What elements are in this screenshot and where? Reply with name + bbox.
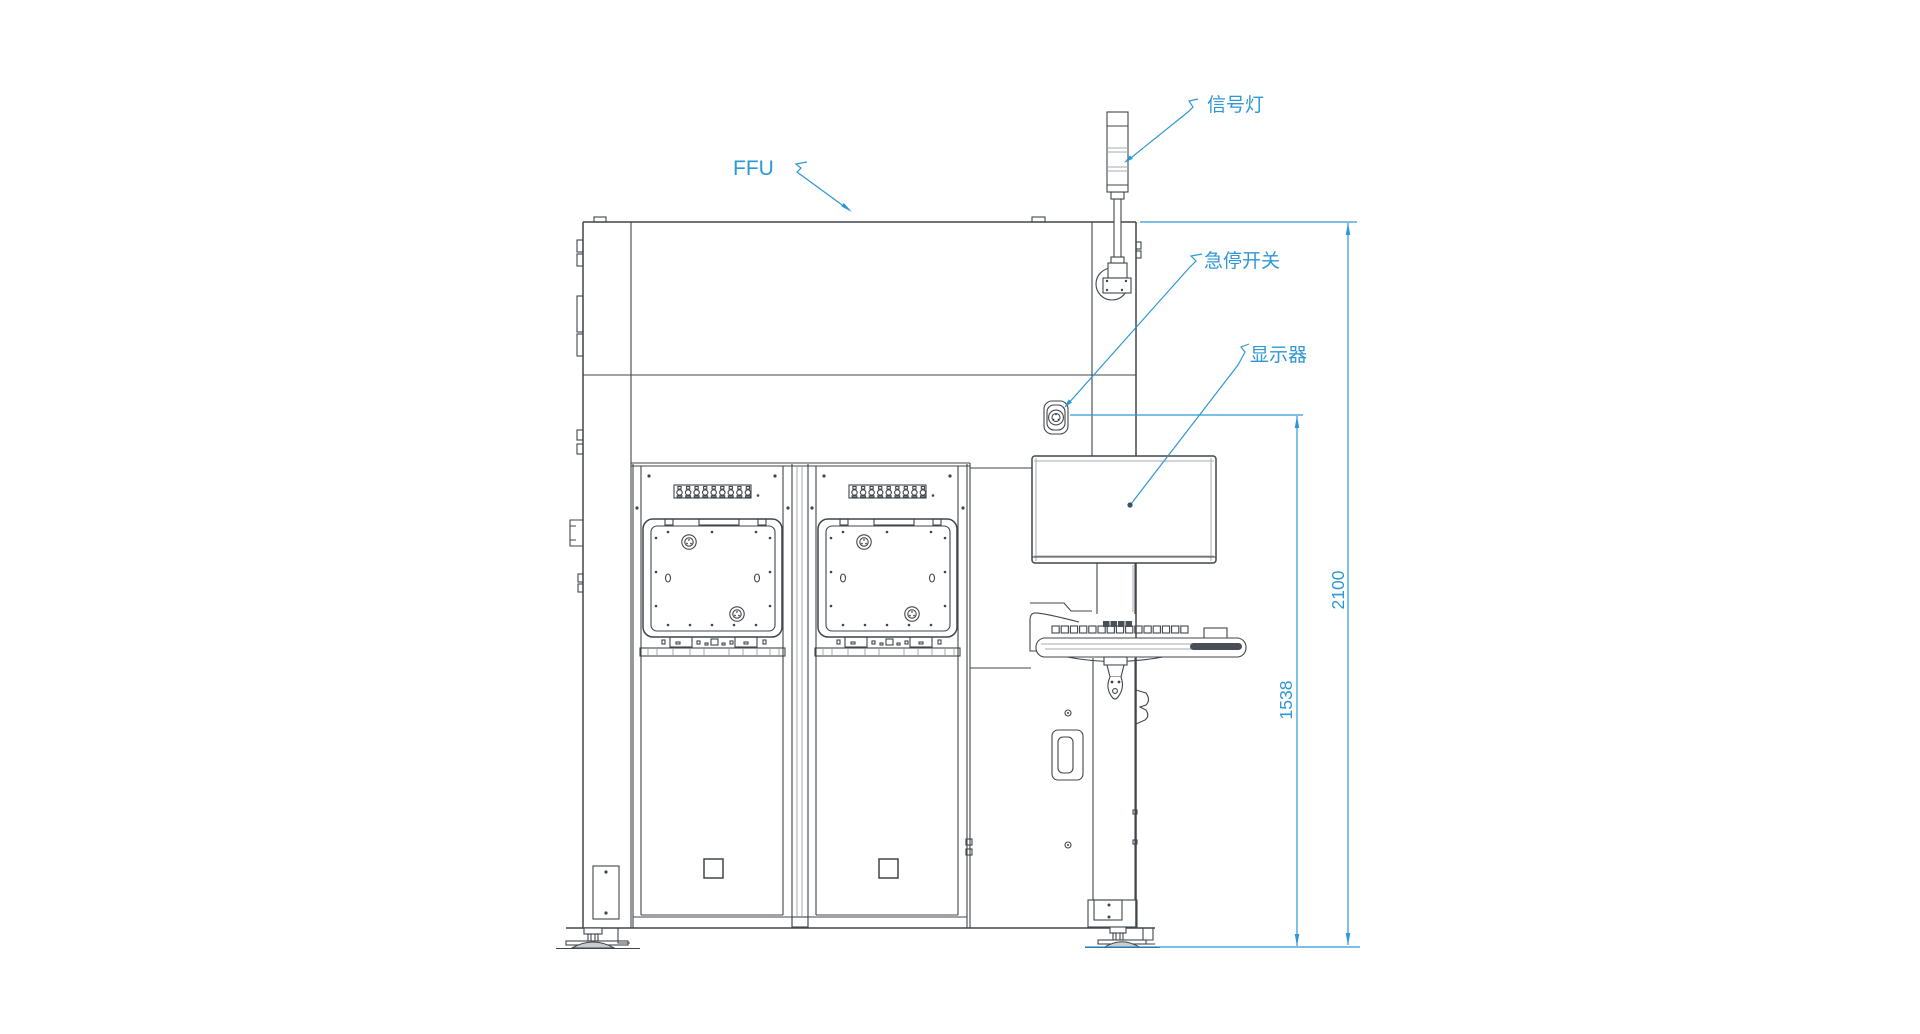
- process-cabinet-left: [633, 464, 792, 928]
- signal-light-label: 信号灯: [1207, 94, 1264, 116]
- right-foot: [1085, 927, 1160, 948]
- right-column: [1088, 242, 1149, 927]
- mouse[interactable]: [1204, 628, 1227, 639]
- tray-mount: [1104, 657, 1127, 699]
- left-foot: [556, 928, 640, 949]
- slot-handle[interactable]: [1052, 730, 1083, 780]
- signal-light-tower: [1096, 112, 1131, 300]
- tray-handle-bar[interactable]: [1190, 643, 1242, 650]
- machine-front-view-drawing: 2100 1538 FFU 信号灯 急停开关 显示器: [0, 0, 1920, 1034]
- keyboard-keys: [1052, 621, 1188, 633]
- dim-text-2100: 2100: [1328, 570, 1348, 609]
- signal-light-callout: 信号灯: [1124, 94, 1264, 163]
- cable-hook: [1136, 690, 1149, 724]
- estop-button[interactable]: [1044, 401, 1068, 434]
- machine-frame: [566, 217, 1155, 928]
- dim-total-height: 2100: [1328, 223, 1350, 945]
- estop-label: 急停开关: [1204, 250, 1280, 272]
- process-cabinet-right: [808, 464, 967, 928]
- callout-labels: FFU 信号灯 急停开关 显示器: [733, 94, 1307, 508]
- leveling-feet: [556, 927, 1160, 949]
- ffu-callout: FFU: [733, 157, 852, 212]
- ffu-label: FFU: [733, 157, 774, 180]
- monitor-label: 显示器: [1250, 345, 1307, 366]
- monitor[interactable]: [1032, 456, 1216, 563]
- keyboard-tray[interactable]: [1030, 603, 1246, 699]
- dimension-annotations: 2100 1538: [1070, 222, 1360, 947]
- left-utility-column: [570, 240, 619, 919]
- estop-callout: 急停开关: [1064, 250, 1280, 408]
- cabinet-divider: [792, 467, 808, 927]
- dim-text-1538: 1538: [1276, 681, 1296, 720]
- dim-operator-height: 1538: [1276, 416, 1299, 946]
- technical-drawing-page: 2100 1538 FFU 信号灯 急停开关 显示器: [0, 0, 1920, 1034]
